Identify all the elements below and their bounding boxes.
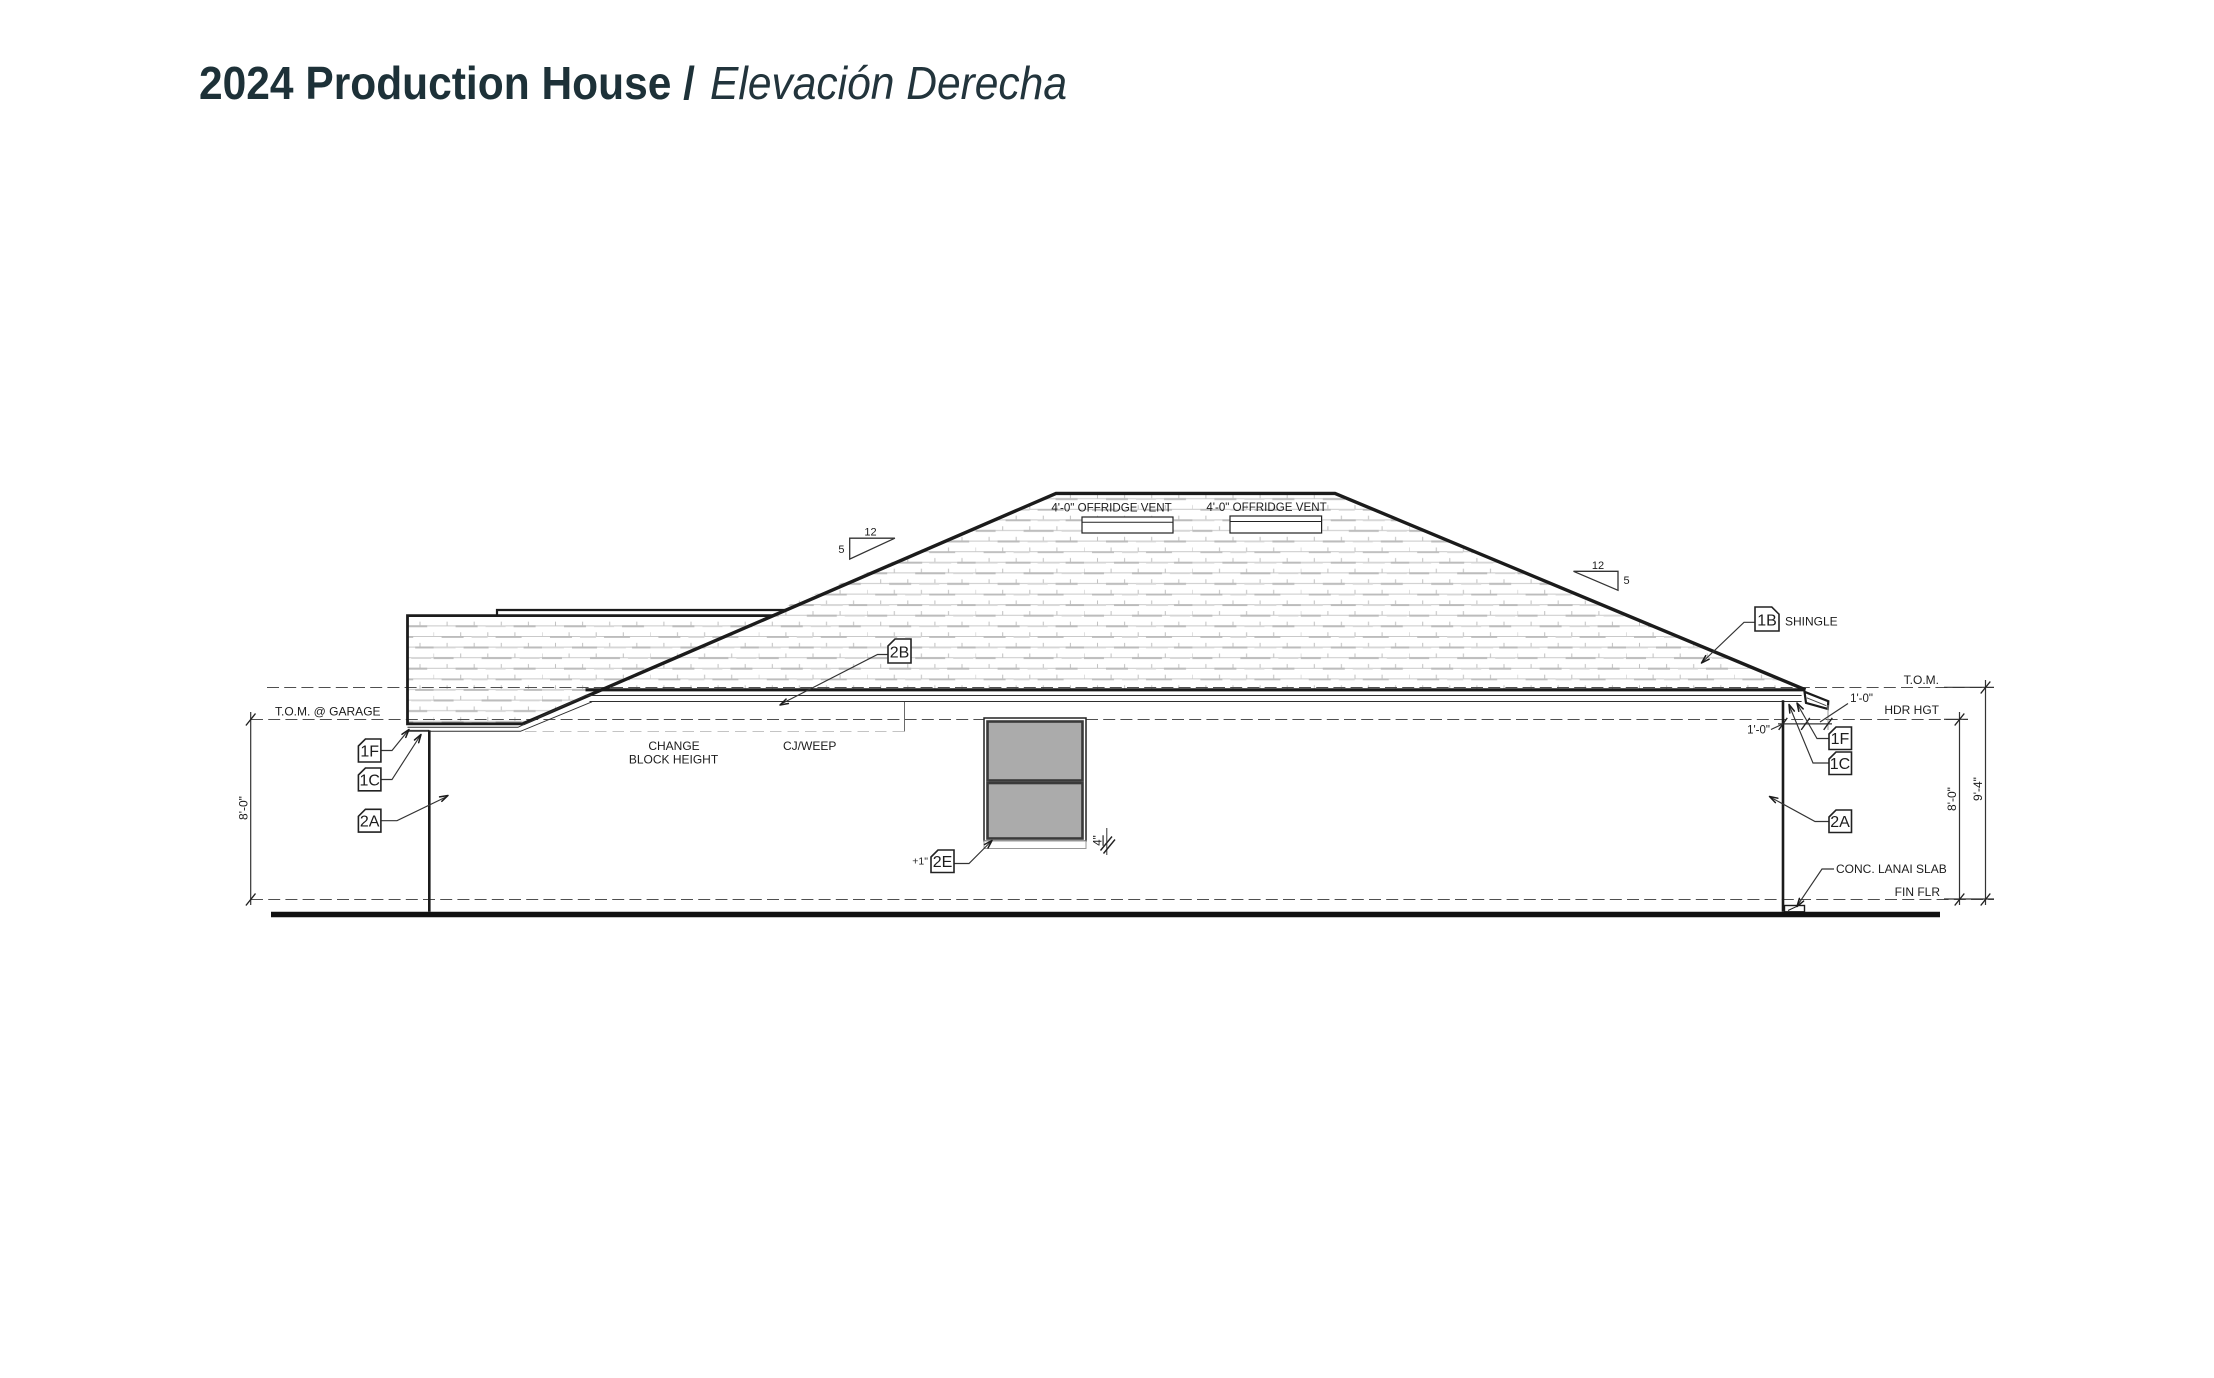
svg-text:2B: 2B — [890, 644, 910, 661]
svg-text:1'-0": 1'-0" — [1850, 693, 1873, 705]
svg-text:2E: 2E — [933, 854, 953, 871]
svg-text:4": 4" — [1093, 835, 1105, 845]
svg-text:9'-4": 9'-4" — [1971, 777, 1985, 801]
svg-text:HDR HGT: HDR HGT — [1884, 703, 1939, 717]
svg-text:CJ/WEEP: CJ/WEEP — [783, 739, 836, 753]
svg-text:12: 12 — [1592, 560, 1604, 572]
svg-text:1'-0": 1'-0" — [1747, 725, 1770, 737]
svg-text:8'-0": 8'-0" — [237, 796, 251, 820]
svg-text:5: 5 — [838, 544, 844, 556]
svg-text:5: 5 — [1624, 575, 1630, 587]
svg-text:CONC. LANAI SLAB: CONC. LANAI SLAB — [1836, 862, 1947, 876]
svg-text:2A: 2A — [1830, 814, 1850, 831]
svg-text:T.O.M. @ GARAGE: T.O.M. @ GARAGE — [275, 705, 381, 719]
svg-text:+1": +1" — [912, 856, 928, 868]
svg-text:1F: 1F — [1831, 731, 1850, 748]
svg-text:12: 12 — [864, 527, 876, 539]
svg-text:1F: 1F — [360, 743, 379, 760]
svg-text:SHINGLE: SHINGLE — [1785, 615, 1838, 629]
svg-text:2A: 2A — [360, 814, 380, 831]
svg-text:8'-0": 8'-0" — [1945, 787, 1959, 811]
svg-text:1C: 1C — [359, 772, 379, 789]
svg-text:2024 Production House /: 2024 Production House / — [199, 57, 695, 109]
svg-text:4'-0" OFFRIDGE VENT: 4'-0" OFFRIDGE VENT — [1206, 501, 1326, 514]
svg-text:1B: 1B — [1757, 612, 1777, 629]
svg-text:1C: 1C — [1830, 756, 1850, 773]
svg-text:FIN FLR: FIN FLR — [1895, 885, 1941, 899]
svg-text:T.O.M.: T.O.M. — [1904, 673, 1939, 687]
svg-text:Elevación Derecha: Elevación Derecha — [710, 57, 1067, 109]
svg-text:CHANGE: CHANGE — [648, 739, 699, 753]
svg-text:4'-0" OFFRIDGE VENT: 4'-0" OFFRIDGE VENT — [1051, 502, 1171, 515]
svg-text:BLOCK HEIGHT: BLOCK HEIGHT — [629, 753, 719, 767]
